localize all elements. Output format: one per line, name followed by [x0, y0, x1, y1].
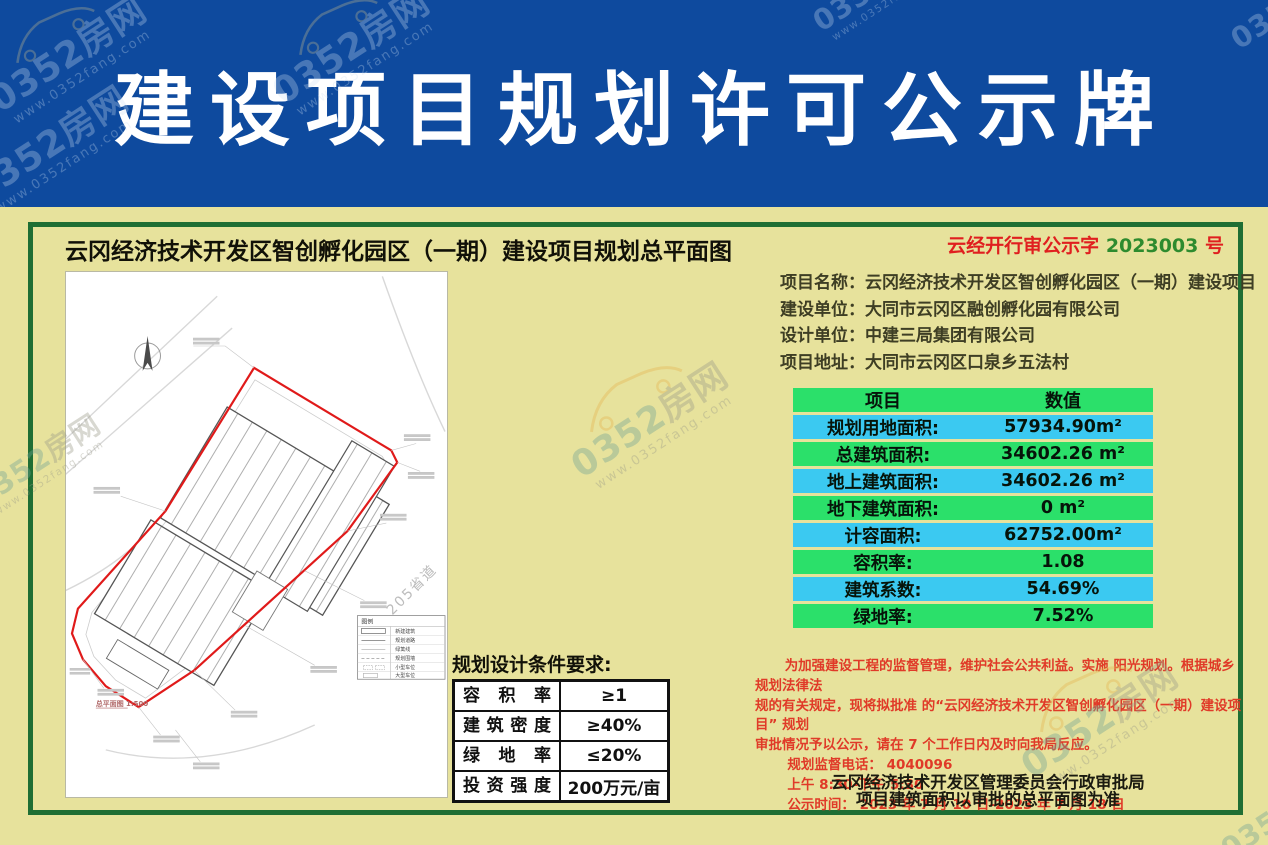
- notice-line: 为加强建设工程的监督管理，维护社会公共利益。实施 阳光规划。根据城乡规划法律法: [755, 657, 1243, 697]
- notice-board: { "banner": { "title": "建设项目规划许可公示牌" }, …: [0, 0, 1268, 845]
- condition-label-cell: 建筑密度: [454, 711, 560, 741]
- plan-title: 云冈经济技术开发区智创孵化园区（一期）建设项目规划总平面图: [65, 232, 732, 266]
- table-row: 计容面积: 62752.00m²: [793, 523, 1153, 547]
- doc-number-prefix: 云经开行审公示字: [947, 235, 1099, 257]
- legend-item: 大型车位: [395, 672, 415, 679]
- condition-value-cell: 200万元/亩: [560, 771, 668, 801]
- row-label: 容积率:: [793, 550, 973, 574]
- row-label: 地上建筑面积:: [793, 469, 973, 493]
- condition-label-cell: 投资强度: [454, 771, 560, 801]
- table-row: 地下建筑面积: 0 m²: [793, 496, 1153, 520]
- table-row: 规划用地面积: 57934.90m²: [793, 415, 1153, 439]
- info-row: 建设单位：大同市云冈区融创孵化园有限公司: [780, 297, 1240, 324]
- info-row: 设计单位：中建三局集团有限公司: [780, 323, 1240, 350]
- title-banner: 建设项目规划许可公示牌 0352房网 www.0352fang.com 0352…: [0, 0, 1268, 207]
- doc-number-suffix: 号: [1205, 235, 1224, 257]
- info-value: 云冈经济技术开发区智创孵化园区（一期）建设项目: [865, 273, 1256, 293]
- info-value: 大同市云冈区口泉乡五法村: [865, 353, 1069, 373]
- row-value: 34602.26 m²: [973, 469, 1153, 493]
- legend-item: 绿篱线: [395, 646, 410, 653]
- legend-title: 图例: [361, 618, 373, 626]
- plan-legend: 图例 新建建筑 规划道路 绿篱线 规划围墙 小型车位: [357, 616, 445, 680]
- site-plan: 图例 新建建筑 规划道路 绿篱线 规划围墙 小型车位: [65, 271, 448, 798]
- row-value: 0 m²: [973, 496, 1153, 520]
- info-value: 中建三局集团有限公司: [865, 326, 1035, 346]
- plan-caption: 总平面图 1:500: [96, 699, 149, 708]
- row-value: 54.69%: [973, 577, 1153, 601]
- site-plan-svg: 图例 新建建筑 规划道路 绿篱线 规划围墙 小型车位: [66, 272, 447, 797]
- row-label: 规划用地面积:: [793, 415, 973, 439]
- info-row: 项目名称：云冈经济技术开发区智创孵化园区（一期）建设项目: [780, 270, 1240, 297]
- value-table: 项目 数值 规划用地面积: 57934.90m² 总建筑面积: 34602.26…: [793, 388, 1153, 631]
- row-label: 总建筑面积:: [793, 442, 973, 466]
- legend-item: 小型车位: [395, 664, 415, 671]
- page-title: 建设项目规划许可公示牌: [0, 0, 1268, 207]
- row-value: 34602.26 m²: [973, 442, 1153, 466]
- condition-value-cell: ≤20%: [560, 741, 668, 771]
- doc-number-value: 2023003: [1106, 235, 1199, 257]
- road-label: 205省道: [384, 562, 441, 619]
- condition-value-cell: ≥40%: [560, 711, 668, 741]
- table-row: 总建筑面积: 34602.26 m²: [793, 442, 1153, 466]
- row-value: 7.52%: [973, 604, 1153, 628]
- table-row: 绿地率: 7.52%: [793, 604, 1153, 628]
- table-row: 地上建筑面积: 34602.26 m²: [793, 469, 1153, 493]
- row-label: 建筑系数:: [793, 577, 973, 601]
- info-label: 建设单位：: [780, 300, 865, 320]
- notice-line: 规的有关规定，现将拟批准 的“云冈经济技术开发区智创孵化园区（一期）建设项目” …: [755, 697, 1243, 737]
- col-header-value: 数值: [973, 388, 1153, 412]
- row-label: 计容面积:: [793, 523, 973, 547]
- info-row: 项目地址：大同市云冈区口泉乡五法村: [780, 350, 1240, 377]
- row-value: 62752.00m²: [973, 523, 1153, 547]
- row-label: 绿地率:: [793, 604, 973, 628]
- info-label: 项目地址：: [780, 353, 865, 373]
- col-header-item: 项目: [793, 388, 973, 412]
- conditions-table: 容积率 ≥1 建筑密度 ≥40% 绿地率 ≤20% 投资强度 200万元/亩: [452, 679, 670, 803]
- legend-item: 规划围墙: [395, 655, 415, 662]
- info-label: 项目名称：: [780, 273, 865, 293]
- row-value: 57934.90m²: [973, 415, 1153, 439]
- notice-panel: 云冈经济技术开发区智创孵化园区（一期）建设项目规划总平面图 云经开行审公示字 2…: [28, 222, 1243, 815]
- issuing-authority: 云冈经济技术开发区管理委员会行政审批局 项目建筑面积以审批的总平面图为准: [723, 775, 1253, 809]
- authority-note: 项目建筑面积以审批的总平面图为准: [723, 792, 1253, 809]
- doc-number: 云经开行审公示字 2023003 号: [947, 231, 1224, 258]
- condition-value-cell: ≥1: [560, 681, 668, 711]
- row-value: 1.08: [973, 550, 1153, 574]
- table-row: 容积率: 1.08: [793, 550, 1153, 574]
- table-header-row: 项目 数值: [793, 388, 1153, 412]
- condition-label-cell: 容积率: [454, 681, 560, 711]
- condition-label-cell: 绿地率: [454, 741, 560, 771]
- info-value: 大同市云冈区融创孵化园有限公司: [865, 300, 1120, 320]
- info-label: 设计单位：: [780, 326, 865, 346]
- conditions-title: 规划设计条件要求:: [452, 650, 612, 677]
- project-info: 项目名称：云冈经济技术开发区智创孵化园区（一期）建设项目 建设单位：大同市云冈区…: [780, 270, 1240, 376]
- legend-item: 规划道路: [395, 637, 415, 644]
- table-row: 建筑系数: 54.69%: [793, 577, 1153, 601]
- row-label: 地下建筑面积:: [793, 496, 973, 520]
- legend-item: 新建建筑: [395, 628, 415, 635]
- notice-line: 审批情况予以公示，请在 7 个工作日内及时向我局反应。: [755, 736, 1243, 756]
